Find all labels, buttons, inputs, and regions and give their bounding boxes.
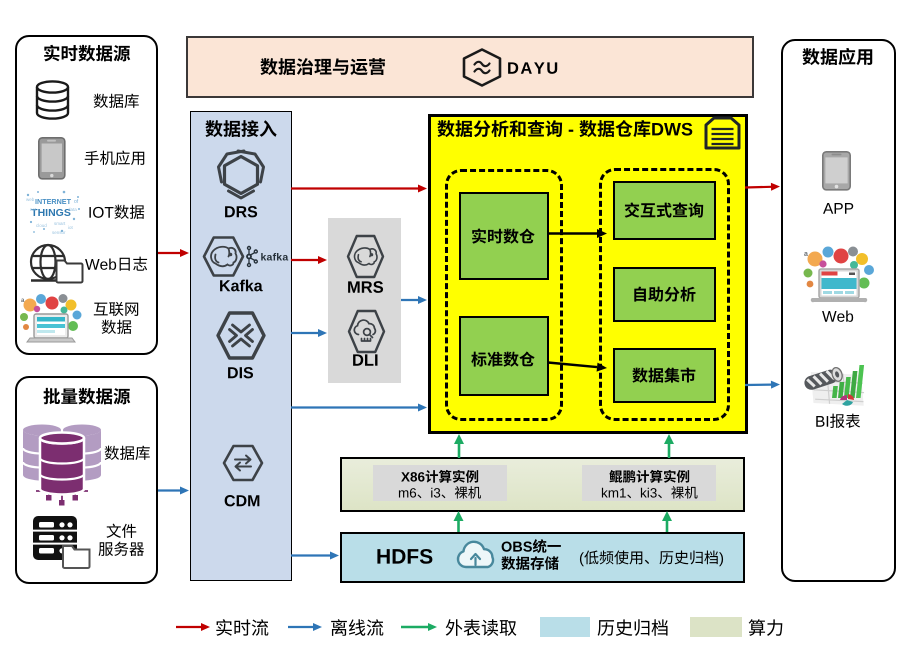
svg-text:THINGS: THINGS [31,207,71,219]
svg-text:net: net [30,207,37,212]
svg-text:cloud: cloud [36,223,47,228]
svg-text:a: a [804,251,808,258]
svg-text:INTERNET: INTERNET [35,197,72,206]
svg-text:web: web [26,197,35,202]
svg-text:of: of [74,199,79,205]
svg-text:iot: iot [68,225,74,230]
svg-text:data: data [68,207,77,212]
svg-text:kafka: kafka [261,252,289,264]
svg-text:smart: smart [54,221,66,226]
svg-text:sensor: sensor [52,230,66,235]
